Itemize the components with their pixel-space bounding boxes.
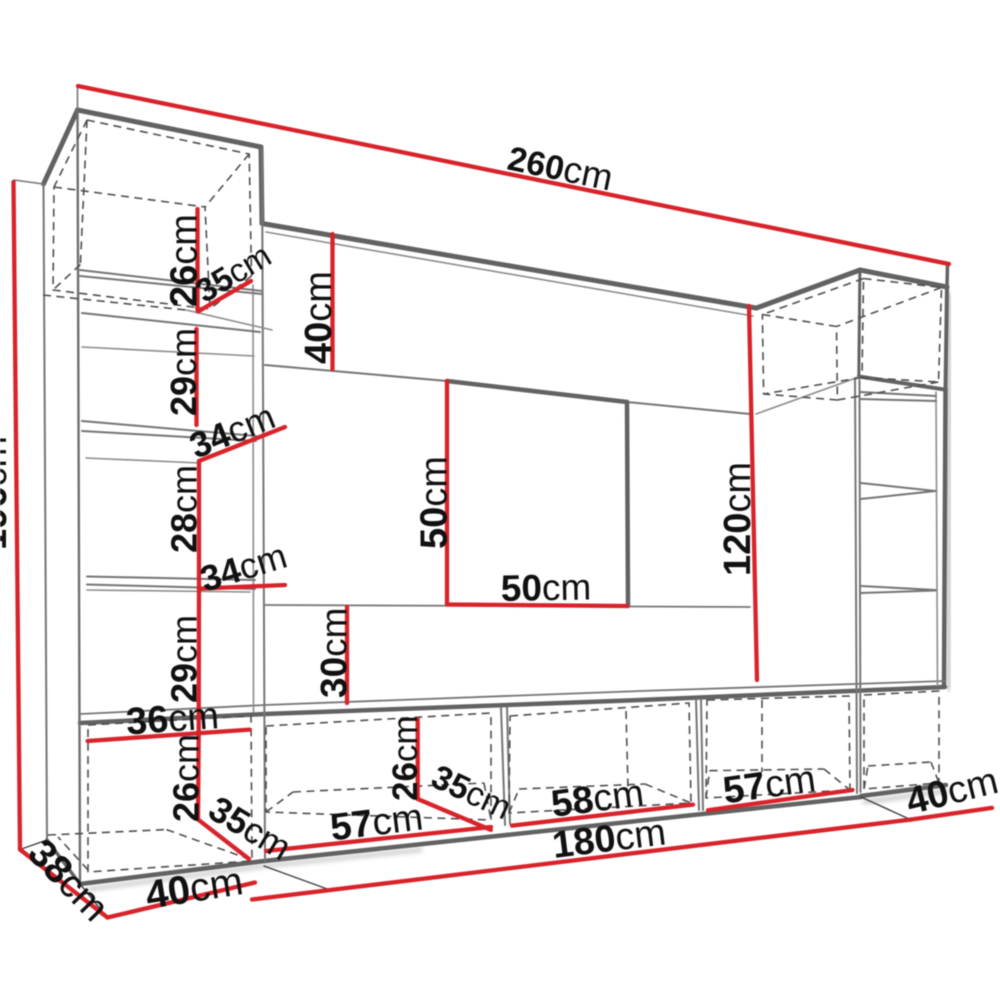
svg-text:50cm: 50cm [414, 456, 456, 549]
svg-text:26cm: 26cm [166, 734, 207, 822]
svg-text:30cm: 30cm [314, 608, 355, 698]
svg-text:120cm: 120cm [717, 462, 759, 576]
svg-text:29cm: 29cm [164, 615, 205, 703]
svg-text:28cm: 28cm [164, 465, 205, 553]
svg-text:196cm: 196cm [0, 436, 15, 550]
svg-text:50cm: 50cm [500, 566, 591, 609]
svg-text:29cm: 29cm [163, 328, 204, 416]
svg-text:40cm: 40cm [298, 271, 340, 364]
svg-text:26cm: 26cm [386, 715, 425, 801]
